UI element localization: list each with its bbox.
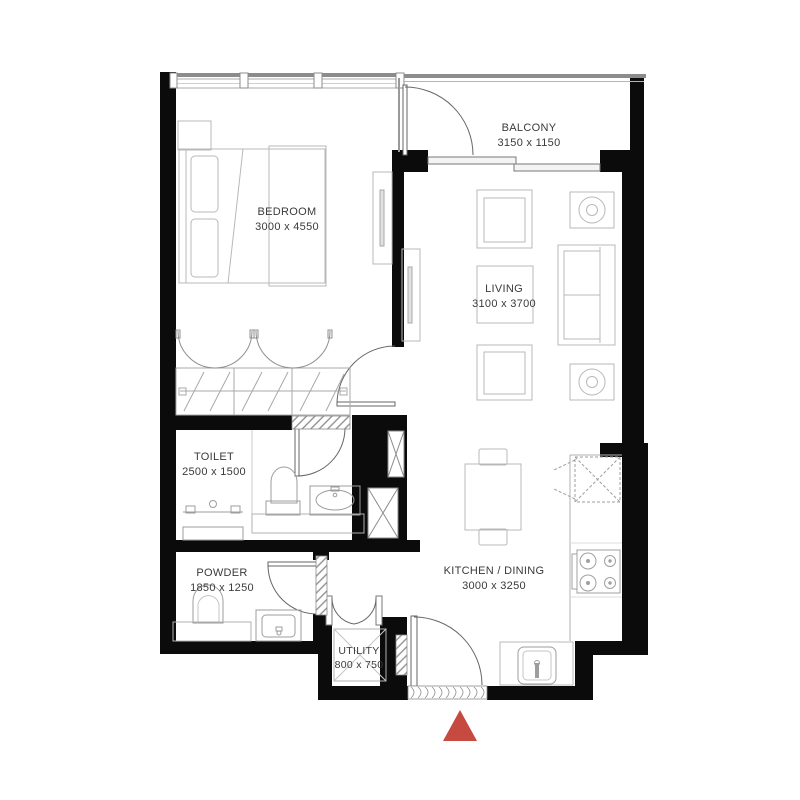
wall [396,617,407,635]
powder-basin [256,610,301,641]
shaft [368,488,398,538]
kitchen-sink [500,642,573,685]
sliding-door [428,157,600,171]
balcony-name: BALCONY [469,121,589,136]
wall [487,686,593,700]
utility-doors [326,596,382,625]
wall [622,443,648,643]
bedroom-furniture [176,121,392,415]
toilet-door [295,428,345,476]
floor-plan: BEDROOM 3000 x 4550 BALCONY 3150 x 1150 … [0,0,800,800]
side-table-lamp [570,364,614,400]
pillow [191,156,218,212]
bedroom-dimensions: 3000 x 4550 [227,220,347,235]
wardrobe-doors [176,330,332,368]
window-mullion [170,73,177,88]
utility-dimensions: 800 x 750 [305,659,413,673]
sofa [558,245,615,345]
armchair [477,190,532,248]
cooktop [572,550,620,593]
room-label-kitchen-dining: KITCHEN / DINING 3000 x 3250 [424,564,564,593]
wardrobe [176,330,350,415]
room-label-toilet: TOILET 2500 x 1500 [154,450,274,479]
powder-threshold [316,556,327,615]
window-mullion [240,73,248,88]
floor-plan-drawing [0,0,800,800]
bedroom-door [337,346,395,406]
room-label-utility: UTILITY 800 x 750 [305,645,413,672]
wall [318,686,406,700]
kitchen-dining-name: KITCHEN / DINING [424,564,564,579]
entrance-threshold [408,686,487,699]
kitchen-counter [570,455,622,641]
dining-set [465,449,521,545]
entrance-door [411,616,482,686]
powder-name: POWDER [162,566,282,581]
room-label-balcony: BALCONY 3150 x 1150 [469,121,589,150]
balcony-door [403,85,473,155]
bedroom-name: BEDROOM [227,205,347,220]
shower [183,501,243,514]
balcony-dimensions: 3150 x 1150 [469,136,589,151]
toilet-threshold [292,416,350,429]
entrance-marker [443,710,477,741]
pillow [191,219,218,277]
wall [176,415,292,430]
toilet-fixtures [183,430,364,540]
nightstand [178,121,211,150]
wall [160,540,420,552]
toilet-vanity [252,486,364,533]
powder-dimensions: 1850 x 1250 [162,581,282,596]
wall [622,172,644,445]
utility-name: UTILITY [305,645,413,659]
tv [408,267,412,323]
room-label-powder: POWDER 1850 x 1250 [162,566,282,595]
dining-table [465,464,521,530]
dining-chair [479,449,507,465]
tv [380,190,384,246]
toilet-dimensions: 2500 x 1500 [154,465,274,480]
window-mullion [314,73,322,88]
living-dimensions: 3100 x 3700 [444,297,564,312]
armchair [477,345,532,400]
living-tv-unit [402,249,420,341]
toilet-name: TOILET [154,450,274,465]
fridge [554,457,620,502]
living-name: LIVING [444,282,564,297]
wall [396,675,407,700]
shaft [388,431,404,477]
room-label-bedroom: BEDROOM 3000 x 4550 [227,205,347,234]
wall [630,74,644,160]
dining-chair [479,529,507,545]
kitchen-dining-dimensions: 3000 x 3250 [424,579,564,594]
side-table-lamp [570,192,614,228]
doors [268,85,482,686]
bedroom-tv-unit [373,172,392,264]
bedroom-window [170,73,404,88]
room-label-living: LIVING 3100 x 3700 [444,282,564,311]
wall-niche [183,527,243,540]
balcony-partition [398,78,400,152]
